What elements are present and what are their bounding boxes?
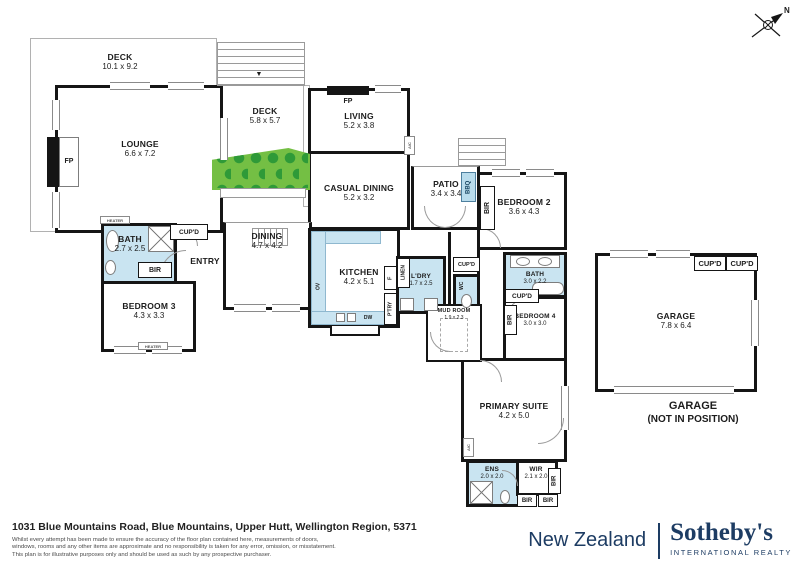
room-deck-main-label: DECK 10.1 x 9.2 bbox=[70, 50, 170, 74]
brand-region-text: New Zealand bbox=[528, 529, 646, 552]
ac-unit-living: A/C bbox=[404, 136, 415, 155]
laundry-washer bbox=[400, 298, 414, 311]
kitchen-bay-window bbox=[330, 324, 380, 336]
window-lounge-top-1 bbox=[110, 82, 150, 90]
lounge-fireplace-block bbox=[47, 137, 59, 187]
window-living-top bbox=[375, 85, 401, 93]
window-dining-bottom-2 bbox=[272, 304, 300, 312]
room-bath1-label: BATH 2.7 x 2.5 bbox=[100, 232, 160, 256]
room-deck-upper-label: DECK 5.8 x 5.7 bbox=[230, 103, 300, 129]
deck-stairs-arrow: ▼ bbox=[253, 70, 265, 80]
fridge-label: F bbox=[384, 266, 397, 290]
kitchen-sink bbox=[336, 313, 345, 322]
window-garage-top-1 bbox=[610, 250, 648, 258]
room-dining-label: DINING 4.7 x 4.2 bbox=[226, 228, 308, 254]
planter-trees bbox=[214, 150, 308, 188]
wc-label: WC bbox=[456, 278, 468, 294]
disclaimer-line-3: This plan is for illustrative purposes o… bbox=[12, 552, 336, 559]
cupboard-wc: CUP'D bbox=[453, 257, 480, 272]
window-bedroom2-top-2 bbox=[526, 169, 554, 177]
built-in-robe-wir: BIR bbox=[548, 468, 561, 494]
property-address: 1031 Blue Mountains Road, Blue Mountains… bbox=[12, 521, 417, 533]
ensuite-shower bbox=[470, 481, 493, 504]
cupboard-garage-2: CUP'D bbox=[726, 256, 758, 271]
kitchen-sink-2 bbox=[347, 313, 356, 322]
room-ensuite-label: ENS 2.0 x 2.0 bbox=[470, 464, 514, 484]
room-bedroom2-label: BEDROOM 2 3.6 x 4.3 bbox=[484, 194, 564, 220]
linen-label: LINEN bbox=[397, 258, 410, 288]
room-living-label: LIVING 5.2 x 3.8 bbox=[318, 108, 400, 134]
patio-stairs bbox=[458, 138, 506, 166]
room-casual-dining-label: CASUAL DINING 5.2 x 3.2 bbox=[312, 180, 406, 206]
cupboard-bath1: CUP'D bbox=[170, 224, 208, 240]
built-in-robe-entry: BIR bbox=[138, 262, 172, 278]
brand-logo: New Zealand Sotheby's INTERNATIONAL REAL… bbox=[528, 520, 792, 559]
disclaimer-line-2: windows, rooms and any other items are a… bbox=[12, 544, 336, 551]
oven-label: OV bbox=[312, 276, 325, 296]
bath2-sink-1 bbox=[516, 257, 530, 266]
pantry-label: P'TRY bbox=[384, 293, 397, 325]
window-lounge-top-2 bbox=[168, 82, 204, 90]
disclaimer-line-1: Whilst every attempt has been made to en… bbox=[12, 537, 336, 544]
heater-bedroom3: HEATER bbox=[138, 342, 168, 350]
fireplace-label-living: FP bbox=[338, 96, 358, 106]
brand-tagline-text: INTERNATIONAL REALTY bbox=[670, 548, 792, 557]
window-lounge-left-2 bbox=[52, 192, 60, 228]
brand-divider bbox=[658, 523, 660, 559]
window-lounge-right bbox=[220, 118, 228, 160]
built-in-robe-bedroom4: BIR bbox=[504, 305, 517, 335]
cupboard-garage-1: CUP'D bbox=[694, 256, 726, 271]
bbq-label: BBQ bbox=[461, 172, 476, 202]
window-dining-bottom-1 bbox=[234, 304, 266, 312]
built-in-robe-primary-1: BIR bbox=[517, 494, 537, 507]
window-garage-top-2 bbox=[656, 250, 690, 258]
cupboard-bedroom4: CUP'D bbox=[505, 289, 539, 303]
built-in-robe-bedroom2: BIR bbox=[480, 186, 495, 230]
room-lounge-label: LOUNGE 6.6 x 7.2 bbox=[90, 136, 190, 162]
brand-name-text: Sotheby's bbox=[670, 520, 792, 546]
living-fireplace-block bbox=[327, 86, 369, 95]
fireplace-label-lounge: FP bbox=[60, 155, 78, 167]
brand-name-block: Sotheby's INTERNATIONAL REALTY bbox=[670, 520, 792, 557]
room-mud-room-label: MUD ROOM 1.9 x 2.3 bbox=[428, 306, 480, 324]
bath2-sink-2 bbox=[538, 257, 552, 266]
ac-unit-primary: A/C bbox=[463, 438, 474, 457]
compass-north-label: N bbox=[784, 6, 790, 15]
window-garage-bottom bbox=[614, 386, 734, 394]
room-bath2-label: BATH 3.0 x 2.2 bbox=[506, 268, 564, 290]
window-garage-right bbox=[751, 300, 759, 346]
ensuite-toilet bbox=[500, 490, 510, 504]
floor-plan: ▼ bbox=[0, 0, 800, 566]
heater-lounge: HEATER bbox=[100, 216, 130, 224]
built-in-robe-primary-2: BIR bbox=[538, 494, 558, 507]
room-bedroom3-label: BEDROOM 3 4.3 x 3.3 bbox=[104, 298, 194, 324]
planter-railing bbox=[220, 188, 306, 198]
window-lounge-left-1 bbox=[52, 100, 60, 130]
dishwasher-label: DW bbox=[360, 313, 376, 323]
garage-note: GARAGE (NOT IN POSITION) bbox=[628, 398, 758, 428]
room-primary-suite-label: PRIMARY SUITE 4.2 x 5.0 bbox=[466, 398, 562, 424]
disclaimer-text: Whilst every attempt has been made to en… bbox=[12, 537, 336, 559]
room-garage-label: GARAGE 7.8 x 6.4 bbox=[630, 308, 722, 334]
room-entry-label: ENTRY bbox=[178, 254, 232, 268]
window-bedroom2-top-1 bbox=[492, 169, 520, 177]
bath1-toilet bbox=[105, 260, 116, 275]
